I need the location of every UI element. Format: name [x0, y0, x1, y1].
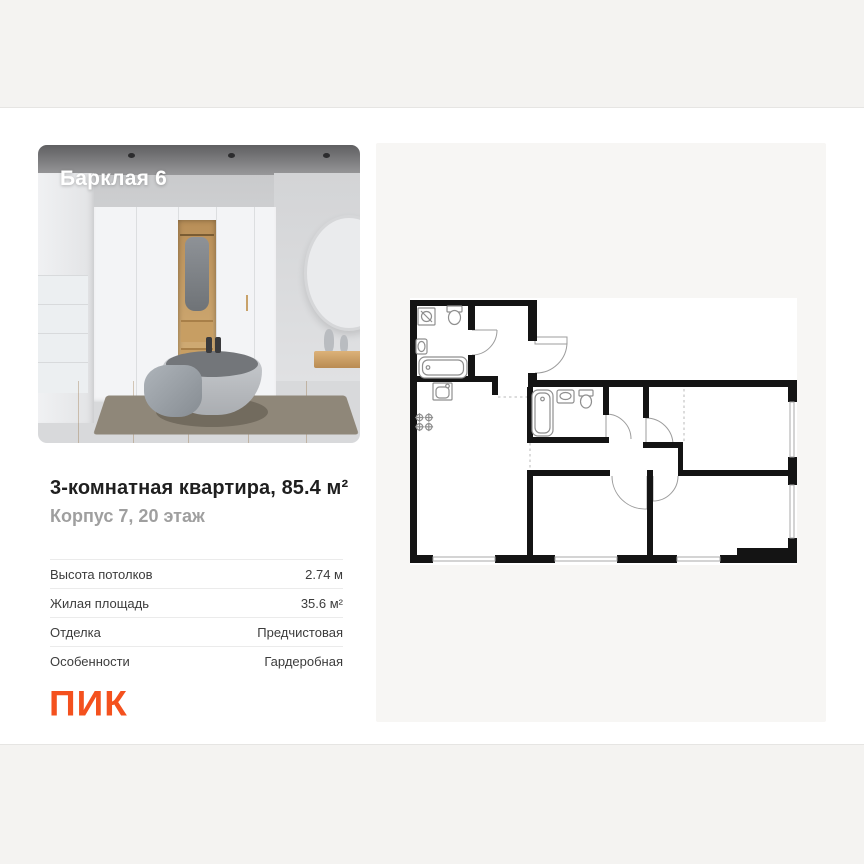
wardrobe-handle	[246, 295, 248, 311]
window	[677, 555, 720, 563]
project-name-label: Барклая 6	[60, 167, 167, 191]
specs-table: Высота потолков 2.74 м Жилая площадь 35.…	[50, 559, 343, 675]
ceiling-light	[128, 153, 135, 158]
ceiling-light	[228, 153, 235, 158]
window	[788, 485, 797, 538]
spec-label: Жилая площадь	[50, 596, 149, 611]
window	[433, 555, 495, 563]
wardrobe-seam	[136, 207, 137, 403]
toilet-icon	[447, 306, 462, 325]
spec-label: Высота потолков	[50, 567, 153, 582]
floorplan-drawing	[410, 298, 797, 565]
spec-value: Гардеробная	[264, 654, 343, 669]
listing-title: 3-комнатная квартира, 85.4 м²	[50, 477, 360, 500]
spec-value: 2.74 м	[305, 567, 343, 582]
bathtub-icon	[532, 390, 553, 436]
table-row: Жилая площадь 35.6 м²	[50, 588, 343, 617]
blanket	[144, 365, 202, 417]
listing-subtitle: Корпус 7, 20 этаж	[50, 506, 360, 527]
sink-icon	[557, 390, 574, 403]
plan-canvas	[410, 298, 797, 565]
listing-ad-image: { "photo_card": { "project_label": "Барк…	[0, 0, 864, 864]
sink-icon	[416, 339, 427, 354]
hanging-coat	[185, 237, 209, 311]
vase	[324, 329, 334, 353]
spec-value: 35.6 м²	[301, 596, 343, 611]
table-row: Отделка Предчистовая	[50, 617, 343, 646]
boots	[206, 337, 212, 353]
developer-logo: ПИК	[49, 684, 128, 724]
toilet-icon	[579, 390, 593, 408]
window	[555, 555, 617, 563]
table-row: Высота потолков 2.74 м	[50, 559, 343, 588]
page-top-margin	[0, 0, 864, 108]
window	[788, 402, 797, 457]
table-row: Особенности Гардеробная	[50, 646, 343, 675]
spec-label: Отделка	[50, 625, 101, 640]
page-bottom-margin	[0, 744, 864, 864]
spec-label: Особенности	[50, 654, 130, 669]
entrance-door-leaf	[535, 337, 567, 344]
left-cabinet	[38, 275, 88, 393]
interior-photo: Барклая 6	[38, 145, 360, 443]
spec-value: Предчистовая	[257, 625, 343, 640]
floorplan-card	[376, 143, 826, 722]
clothes-rail	[180, 234, 214, 236]
ceiling-light	[323, 153, 330, 158]
wooden-console-shelf	[314, 351, 360, 368]
bathtub-icon	[419, 357, 467, 378]
boots	[215, 337, 221, 353]
kitchen-sink-icon	[433, 383, 452, 400]
washing-machine-icon	[418, 308, 435, 325]
